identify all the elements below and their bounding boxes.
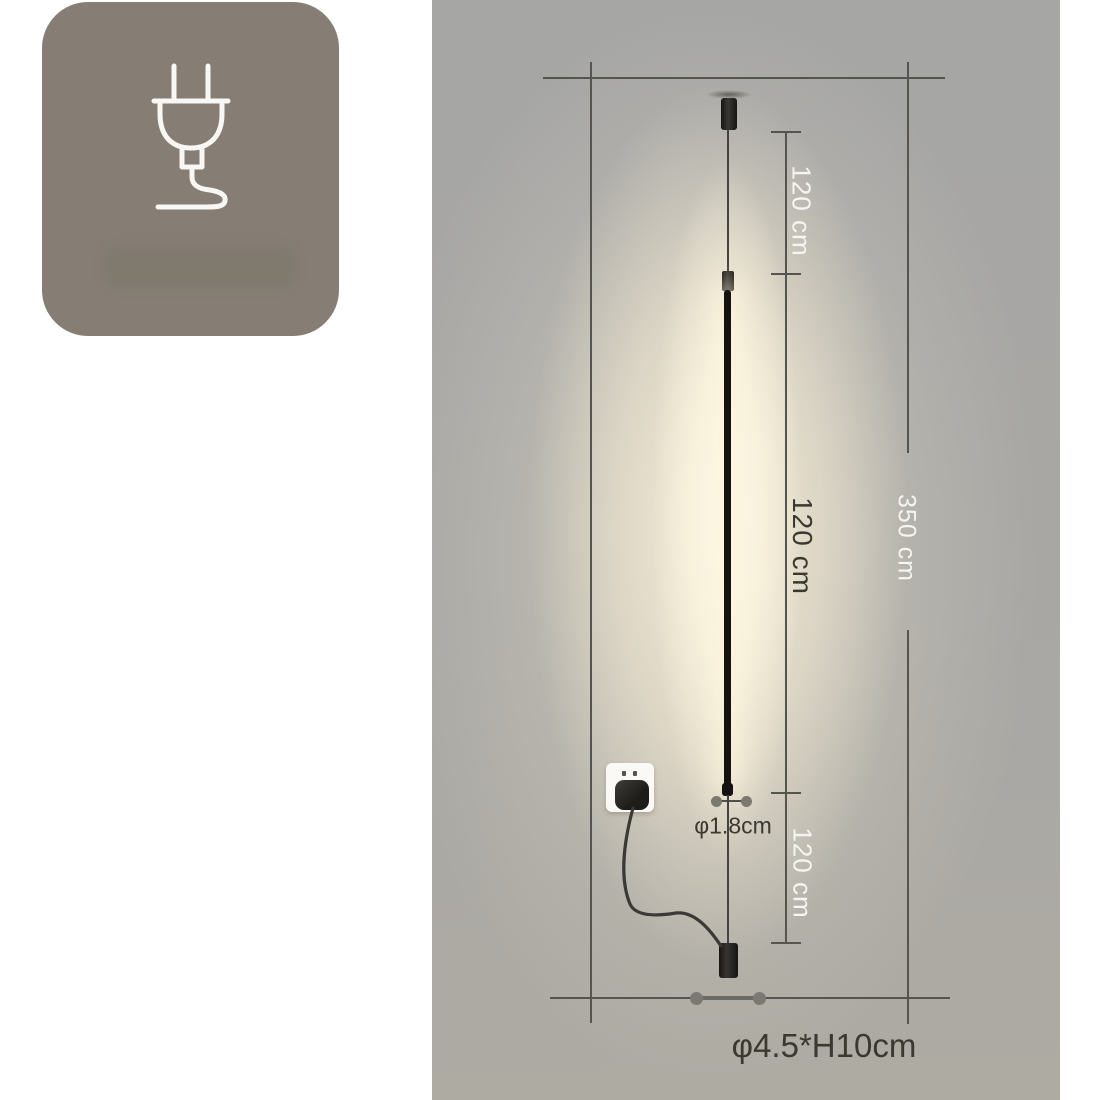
led-light-rod: [724, 290, 731, 787]
base-marker-line: [694, 996, 760, 1000]
rod-top-connector: [722, 271, 734, 291]
label-total-height: 350 cm: [892, 494, 921, 582]
dimension-line-total-upper: [907, 62, 909, 453]
plug-in-badge: [42, 2, 339, 336]
label-segment-bottom: 120 cm: [787, 827, 818, 918]
label-base-size: φ4.5*H10cm: [732, 1027, 917, 1065]
outlet-hole-right: [633, 771, 637, 776]
segment-tick-3: [771, 792, 801, 794]
dimension-line-top: [543, 77, 945, 79]
segment-tick-1: [771, 131, 801, 133]
lamp-scene-panel: [432, 0, 1060, 1100]
product-dimension-diagram: 120 cm 120 cm 120 cm 350 cm φ1.8cm φ4.5*…: [0, 0, 1100, 1100]
segment-tick-2: [771, 273, 801, 275]
watermark-smudge: [105, 246, 295, 288]
ceiling-mount-cylinder: [721, 98, 737, 130]
label-segment-middle: 120 cm: [786, 497, 818, 595]
dimension-line-total-lower: [907, 630, 909, 1024]
base-marker-dot-left: [690, 992, 703, 1005]
segment-tick-4: [771, 942, 801, 944]
power-plug-icon: [150, 60, 232, 210]
diameter-bracket-dot-right: [741, 796, 752, 807]
outlet-hole-left: [622, 771, 626, 776]
dimension-line-left: [590, 62, 592, 1023]
suspension-cable-upper: [727, 130, 729, 272]
label-rod-diameter: φ1.8cm: [694, 813, 772, 840]
base-marker-dot-right: [753, 992, 766, 1005]
label-segment-top: 120 cm: [786, 165, 817, 256]
